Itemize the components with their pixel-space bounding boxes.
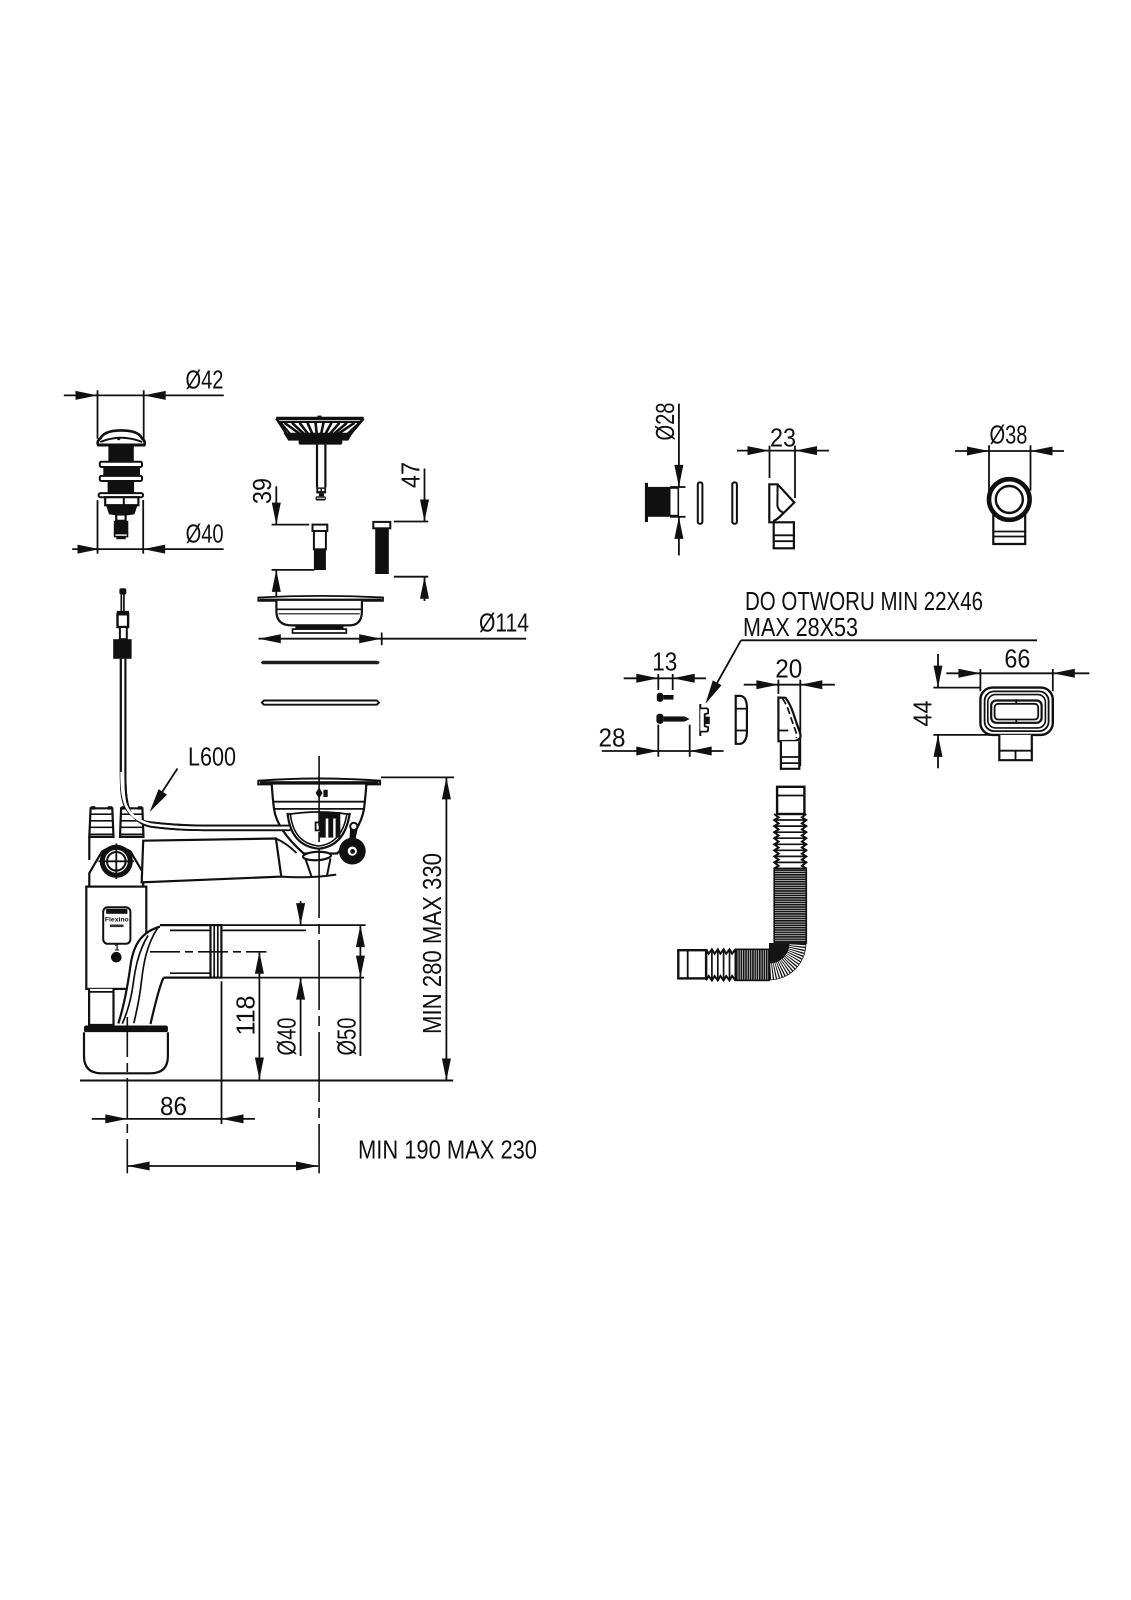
svg-text:47: 47 [396,462,426,488]
svg-text:Ø40: Ø40 [272,1018,302,1056]
svg-text:39: 39 [247,478,277,504]
svg-text:MIN 190 MAX 230: MIN 190 MAX 230 [358,1135,537,1165]
svg-text:Ø114: Ø114 [479,608,529,638]
svg-text:MIN 280 MAX 330: MIN 280 MAX 330 [417,853,447,1034]
svg-text:Ø50: Ø50 [331,1018,361,1056]
svg-text:86: 86 [160,1091,187,1121]
svg-text:Flexino: Flexino [105,917,129,924]
svg-text:Ø38: Ø38 [990,420,1028,450]
svg-text:Ø28: Ø28 [650,403,680,441]
svg-text:28: 28 [599,723,626,753]
svg-text:L600: L600 [188,742,236,772]
svg-text:44: 44 [908,701,938,727]
svg-text:20: 20 [775,654,802,684]
svg-text:23: 23 [770,423,796,453]
svg-text:13: 13 [652,647,677,677]
svg-text:118: 118 [231,996,261,1036]
svg-text:Ø42: Ø42 [186,365,224,395]
svg-text:66: 66 [1004,644,1030,674]
svg-text:MAX 28X53: MAX 28X53 [743,612,858,642]
svg-text:1: 1 [114,943,119,953]
svg-text:Ø40: Ø40 [186,519,224,549]
